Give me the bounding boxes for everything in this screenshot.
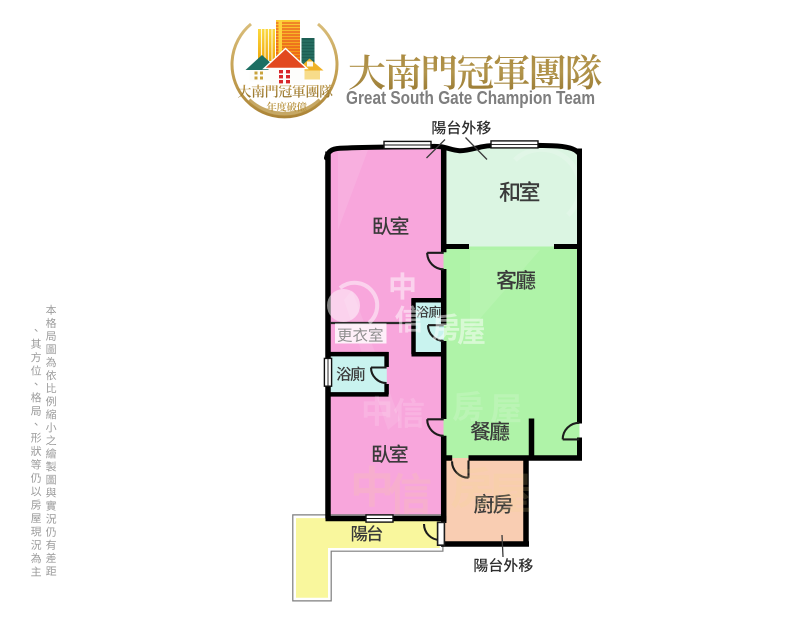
svg-text:Great South Gate Champion Team: Great South Gate Champion Team [346, 87, 595, 108]
